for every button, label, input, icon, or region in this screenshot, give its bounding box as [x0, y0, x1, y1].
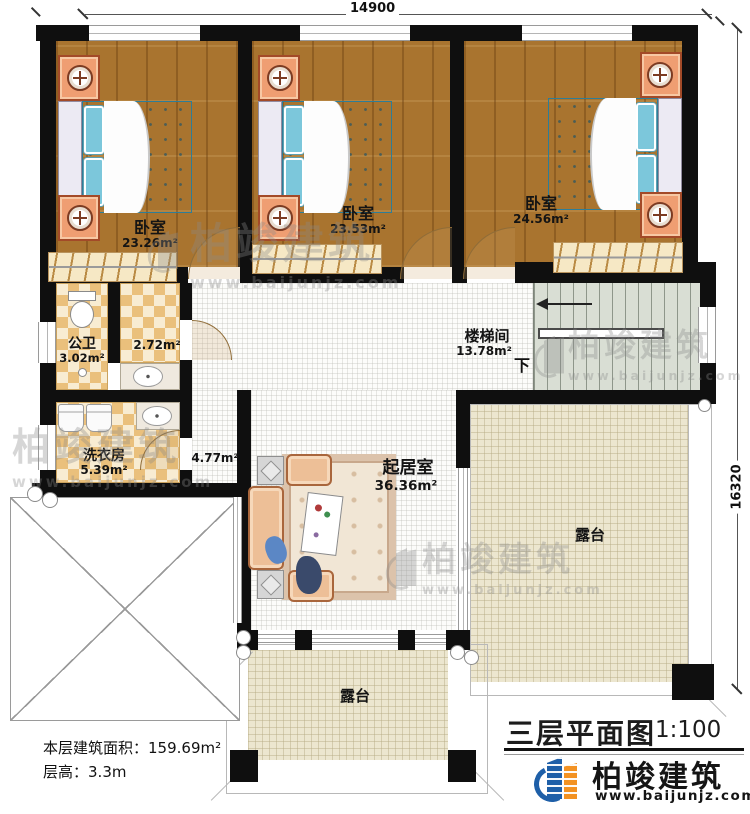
column-dot	[450, 645, 465, 660]
duvet	[590, 98, 636, 210]
plan-scale: 1:100	[655, 717, 721, 743]
pillow	[84, 106, 104, 154]
nightstand	[640, 192, 682, 238]
table-decor	[324, 511, 331, 518]
watermark: 柏竣建筑 www.baijunjz.com	[386, 532, 603, 598]
toilet	[68, 291, 96, 301]
watermark: 柏竣建筑 www.baijunjz.com	[534, 320, 744, 383]
stairwell-label: 楼梯间	[464, 329, 509, 345]
column-dot	[236, 630, 251, 645]
wall-segment	[682, 25, 698, 273]
nightstand	[640, 52, 682, 98]
watermark: 柏竣建筑 www.baijunjz.com	[0, 416, 213, 491]
watermark-logo-icon	[148, 229, 182, 273]
bedroom3-wardrobe	[553, 242, 683, 273]
brand-building-blue	[547, 757, 562, 799]
bedroom3-area: 24.56m²	[513, 213, 569, 226]
bathroom-area: 3.02m²	[59, 352, 104, 364]
wall-segment	[40, 390, 192, 402]
duvet	[304, 101, 350, 213]
stairwell-area: 13.78m²	[456, 345, 512, 358]
stair-down-label: 下	[514, 352, 530, 376]
dimension-tick	[31, 7, 41, 17]
lamp-icon	[647, 202, 673, 228]
bedroom3-bed	[548, 52, 682, 237]
toilet-bowl	[70, 301, 94, 328]
living-room-area: 36.36m²	[375, 479, 438, 493]
bedroom3-label: 卧室	[525, 196, 557, 213]
corner-table	[257, 570, 284, 599]
window	[300, 25, 410, 41]
nightstand	[58, 195, 100, 241]
lamp-icon	[67, 205, 93, 231]
wall-segment	[410, 25, 522, 41]
window	[415, 634, 446, 643]
person-figure	[296, 556, 322, 594]
duvet	[104, 101, 150, 213]
column-dot	[236, 645, 251, 660]
floor-height-info: 层高：3.3m	[43, 761, 126, 782]
dimension-tick	[715, 16, 725, 26]
lamp-icon	[67, 65, 93, 91]
coffee-table	[300, 492, 343, 556]
wall-segment	[450, 41, 464, 267]
window	[522, 25, 632, 41]
watermark-url: www.baijunjz.com	[568, 368, 744, 383]
wall-segment	[398, 630, 415, 650]
lamp-icon	[267, 65, 293, 91]
brand-logo-icon	[534, 754, 586, 806]
column-dot	[42, 492, 58, 508]
stair-direction-line	[548, 303, 592, 305]
stair-arrow-icon	[536, 298, 548, 310]
table-decor	[315, 504, 323, 512]
bathroom-label: 公卫	[68, 337, 96, 352]
watermark-url: www.baijunjz.com	[12, 473, 213, 491]
watermark-logo-icon	[0, 432, 4, 476]
window	[233, 497, 242, 623]
vanity-area: 2.72m²	[133, 339, 180, 352]
wall-segment	[456, 390, 470, 468]
window	[312, 634, 398, 643]
wall-segment	[200, 25, 300, 41]
plan-title: 三层平面图	[506, 712, 656, 752]
window	[89, 25, 200, 41]
floor-drain-icon	[78, 368, 87, 377]
column-dot	[464, 650, 479, 665]
armchair	[286, 454, 332, 486]
dimension-right-value: 16320	[730, 460, 745, 513]
corner-table	[257, 456, 284, 485]
column	[448, 750, 476, 782]
watermark-name: 柏竣建筑	[190, 210, 401, 271]
watermark-name: 柏竣建筑	[422, 532, 603, 581]
wall-segment	[108, 283, 120, 363]
pillow	[636, 103, 656, 151]
lamp-icon	[647, 62, 673, 88]
nightstand	[258, 55, 300, 101]
title-underline	[504, 748, 744, 751]
watermark-name: 柏竣建筑	[568, 320, 744, 366]
window	[38, 322, 56, 363]
sink	[133, 366, 163, 387]
nightstand	[58, 55, 100, 101]
terrace-right-railing-line	[688, 404, 689, 682]
window	[258, 634, 295, 643]
wall-segment	[295, 630, 312, 650]
brand-url: www.baijunjz.com	[595, 788, 750, 804]
floor-area-info: 本层建筑面积：159.69m²	[43, 737, 221, 758]
watermark-url: www.baijunjz.com	[190, 273, 401, 292]
dimension-top-value: 14900	[346, 1, 399, 16]
floor-area-label: 本层建筑面积：	[43, 739, 148, 757]
pillow	[284, 106, 304, 154]
terrace-bottom-label: 露台	[340, 689, 370, 705]
watermark: 柏竣建筑 www.baijunjz.com	[148, 210, 401, 292]
lower-roof-skylight	[10, 497, 240, 721]
table-decor	[313, 532, 319, 538]
floor-plan-canvas: 14900 16320	[0, 0, 750, 814]
living-room-label: 起居室	[383, 460, 434, 478]
watermark-logo-icon	[534, 334, 560, 370]
watermark-url: www.baijunjz.com	[422, 583, 603, 598]
column-dot	[698, 399, 711, 412]
column	[230, 750, 258, 782]
floor-height-label: 层高：	[43, 763, 88, 781]
watermark-logo-icon	[386, 546, 414, 584]
wall-segment	[456, 390, 716, 404]
floor-height-value: 3.3m	[88, 763, 126, 781]
watermark-name: 柏竣建筑	[12, 416, 213, 471]
column	[672, 664, 714, 700]
brand-building-orange	[564, 763, 577, 799]
floor-area-value: 159.69m²	[148, 739, 221, 757]
